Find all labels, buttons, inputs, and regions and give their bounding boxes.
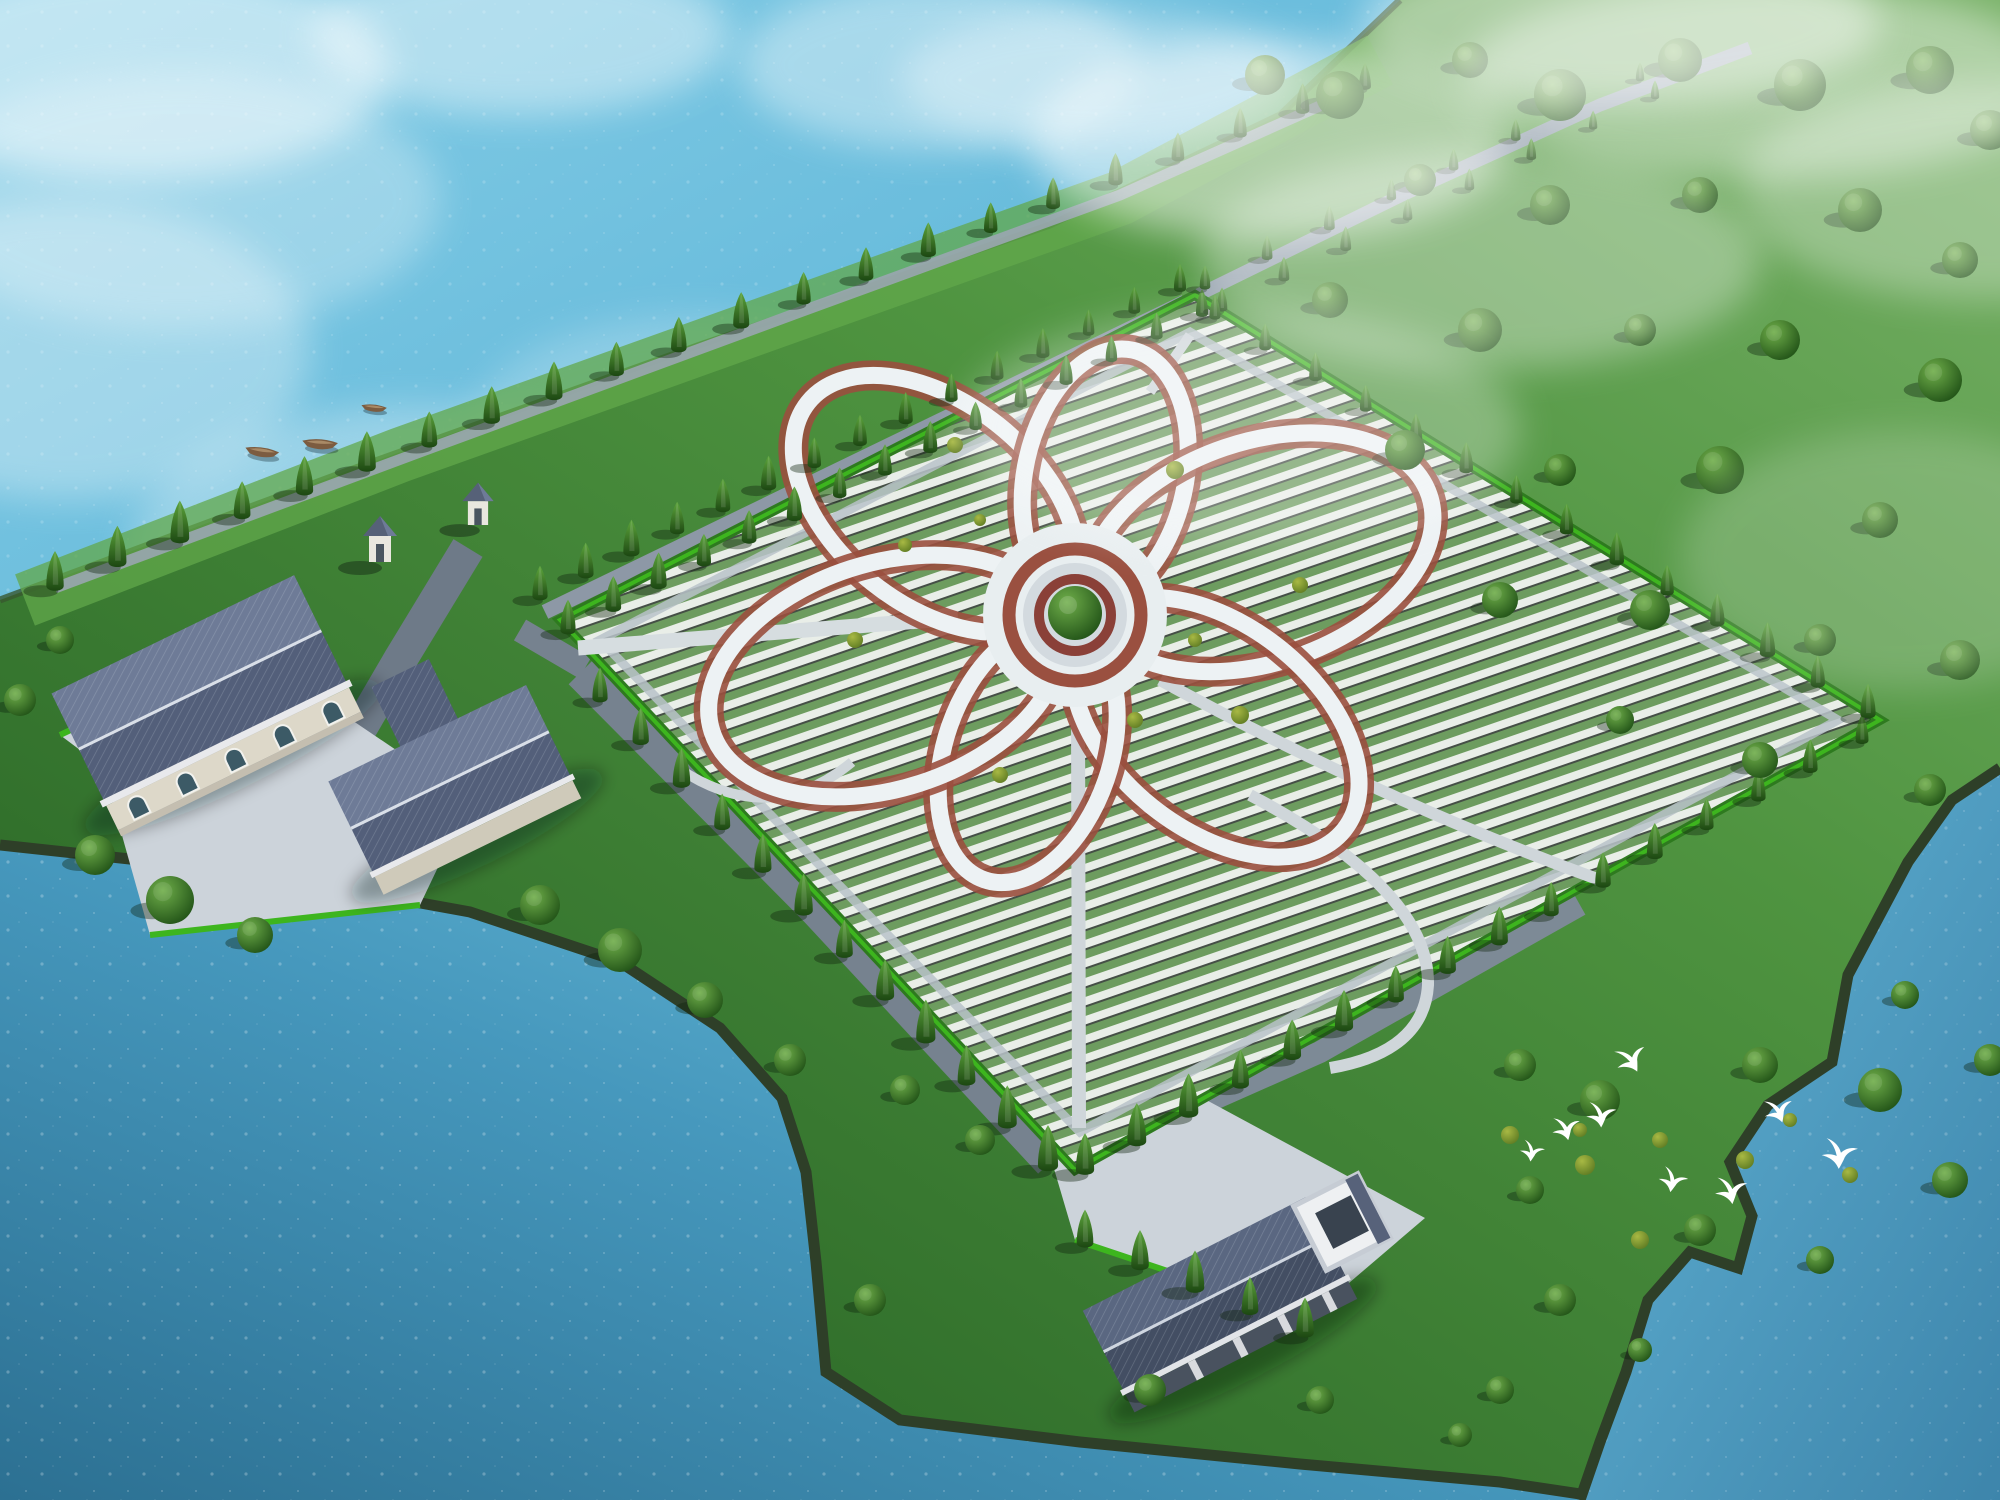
bush bbox=[1842, 1167, 1858, 1183]
shrub-bed bbox=[1292, 577, 1308, 593]
tower-shadow bbox=[439, 524, 479, 537]
bush bbox=[1783, 1113, 1797, 1127]
shrub-bed bbox=[898, 538, 912, 552]
bush bbox=[1736, 1151, 1754, 1169]
bush bbox=[1652, 1132, 1668, 1148]
bush bbox=[1575, 1155, 1595, 1175]
shrub-bed bbox=[974, 514, 986, 526]
shrub-bed bbox=[1127, 712, 1143, 728]
shrub-bed bbox=[1231, 706, 1249, 724]
mist-cloud bbox=[960, 310, 1520, 550]
tower-door bbox=[474, 508, 481, 525]
shrub-bed bbox=[947, 437, 963, 453]
aerial-rendering bbox=[0, 0, 2000, 1500]
scene-canvas bbox=[0, 0, 2000, 1500]
central-tree bbox=[1048, 586, 1102, 640]
tower-shadow bbox=[338, 561, 382, 575]
tree-highlight bbox=[1059, 596, 1077, 614]
south-radial-path bbox=[1078, 705, 1079, 1128]
shrub-bed bbox=[992, 767, 1008, 783]
shrub-bed bbox=[1188, 633, 1202, 647]
central-roundabout bbox=[983, 523, 1167, 707]
bush bbox=[1573, 1123, 1587, 1137]
shrub-bed bbox=[847, 632, 863, 648]
mist-cloud bbox=[900, 10, 1300, 150]
tower-door bbox=[376, 544, 384, 562]
bush bbox=[1501, 1126, 1519, 1144]
bush bbox=[1631, 1231, 1649, 1249]
